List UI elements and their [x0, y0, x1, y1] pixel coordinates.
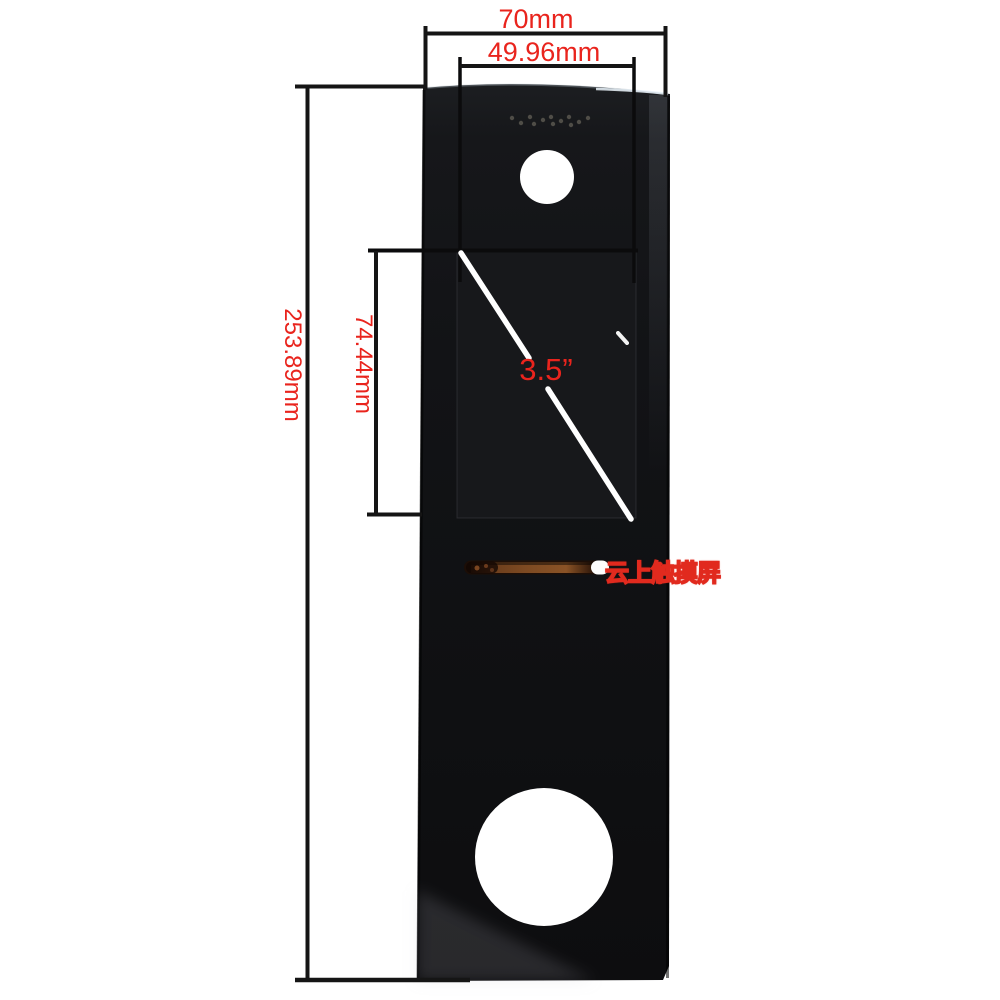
speaker-dot [549, 115, 553, 119]
right-edge-shadow [668, 96, 669, 978]
diagonal-size-label: 3.5” [486, 354, 606, 387]
right-edge-reflection [649, 95, 668, 475]
dim-label-screen-height: 74.44mm [348, 299, 376, 429]
speaker-dot [528, 115, 532, 119]
product-dimension-photo: 70mm 49.96mm 253.89mm 74.44mm 3.5” 云上触摸屏 [0, 0, 1000, 1000]
speaker-dot [569, 123, 573, 127]
speaker-dot [532, 122, 536, 126]
speaker-dot [541, 118, 545, 122]
slot-left-cap [466, 562, 498, 574]
speaker-dot [551, 122, 555, 126]
dim-label-top-width: 70mm [456, 5, 616, 33]
camera-hole [520, 150, 574, 204]
speaker-dot [567, 115, 571, 119]
speaker-dot [510, 116, 514, 120]
dim-label-screen-width: 49.96mm [459, 38, 629, 66]
dim-label-panel-height: 253.89mm [277, 300, 305, 430]
slot-cap-speck [490, 568, 494, 572]
speaker-dot [519, 121, 523, 125]
watermark-text: 云上触摸屏 [605, 553, 720, 588]
flex-cable-slot [464, 561, 609, 575]
speaker-dot [586, 116, 590, 120]
slot-cap-speck [475, 566, 480, 571]
speaker-dot [577, 120, 581, 124]
bottom-round-cutout [475, 788, 613, 926]
panel-graphic [0, 0, 1000, 1000]
slot-cap-speck [484, 564, 488, 568]
speaker-dot [559, 119, 563, 123]
